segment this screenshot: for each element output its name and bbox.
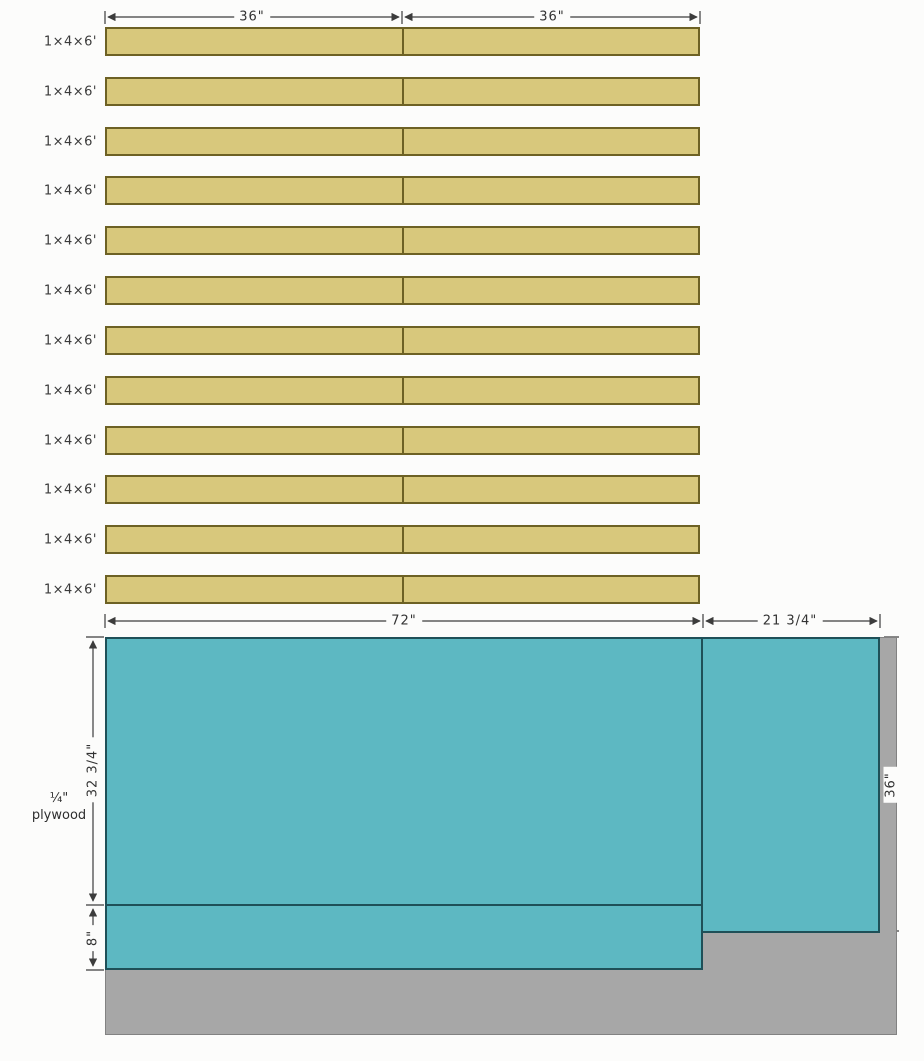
board-size-label: 1×4×6' bbox=[0, 34, 97, 49]
board-size-label: 1×4×6' bbox=[0, 233, 97, 248]
cut-line bbox=[402, 178, 404, 203]
lumber-board bbox=[105, 376, 700, 405]
plywood-thickness: ¼" bbox=[18, 790, 100, 807]
board-size-label: 1×4×6' bbox=[0, 433, 97, 448]
lumber-board bbox=[105, 127, 700, 156]
lumber-board bbox=[105, 77, 700, 106]
board-size-label: 1×4×6' bbox=[0, 532, 97, 547]
board-size-label: 1×4×6' bbox=[0, 582, 97, 597]
board-size-label: 1×4×6' bbox=[0, 482, 97, 497]
dimension-label-36-vertical: 36" bbox=[884, 767, 899, 803]
board-size-label: 1×4×6' bbox=[0, 283, 97, 298]
lumber-board bbox=[105, 27, 700, 56]
cutting-diagram: 1×4×6' 1×4×6' 1×4×6' 1×4×6' 1×4× bbox=[0, 0, 924, 1061]
board-size-label: 1×4×6' bbox=[0, 134, 97, 149]
board-row: 1×4×6' bbox=[0, 127, 924, 156]
dimension-label-21-3-4: 21 3/4" bbox=[758, 614, 823, 629]
dimension-label-36-right: 36" bbox=[534, 10, 570, 25]
dimension-label-36-left: 36" bbox=[234, 10, 270, 25]
cut-line bbox=[402, 477, 404, 502]
cut-line bbox=[402, 79, 404, 104]
lumber-board bbox=[105, 475, 700, 504]
lumber-board bbox=[105, 276, 700, 305]
plywood-word: plywood bbox=[18, 807, 100, 824]
board-row: 1×4×6' bbox=[0, 176, 924, 205]
board-size-label: 1×4×6' bbox=[0, 383, 97, 398]
cut-line bbox=[402, 278, 404, 303]
cut-line bbox=[402, 29, 404, 54]
cut-line bbox=[402, 527, 404, 552]
board-row: 1×4×6' bbox=[0, 475, 924, 504]
board-row: 1×4×6' bbox=[0, 77, 924, 106]
board-size-label: 1×4×6' bbox=[0, 183, 97, 198]
cut-line bbox=[402, 328, 404, 353]
plywood-piece-72x32 bbox=[105, 637, 703, 906]
plywood-piece-72x8 bbox=[105, 904, 703, 970]
dimension-label-72: 72" bbox=[386, 614, 422, 629]
dimension-label-8: 8" bbox=[86, 925, 101, 951]
lumber-board bbox=[105, 525, 700, 554]
cut-line bbox=[402, 428, 404, 453]
lumber-board bbox=[105, 326, 700, 355]
lumber-board bbox=[105, 426, 700, 455]
plywood-material-label: ¼" plywood bbox=[18, 790, 100, 824]
board-row: 1×4×6' bbox=[0, 27, 924, 56]
board-size-label: 1×4×6' bbox=[0, 333, 97, 348]
lumber-board bbox=[105, 575, 700, 604]
boards-top-dimension bbox=[105, 11, 700, 24]
lumber-board bbox=[105, 176, 700, 205]
board-row: 1×4×6' bbox=[0, 575, 924, 604]
board-size-label: 1×4×6' bbox=[0, 84, 97, 99]
cut-line bbox=[402, 577, 404, 602]
cut-line bbox=[402, 378, 404, 403]
board-row: 1×4×6' bbox=[0, 276, 924, 305]
cut-line bbox=[402, 129, 404, 154]
plywood-piece-21x36 bbox=[701, 637, 880, 933]
cut-line bbox=[402, 228, 404, 253]
board-row: 1×4×6' bbox=[0, 426, 924, 455]
lumber-board bbox=[105, 226, 700, 255]
board-row: 1×4×6' bbox=[0, 326, 924, 355]
board-row: 1×4×6' bbox=[0, 376, 924, 405]
board-row: 1×4×6' bbox=[0, 525, 924, 554]
board-row: 1×4×6' bbox=[0, 226, 924, 255]
